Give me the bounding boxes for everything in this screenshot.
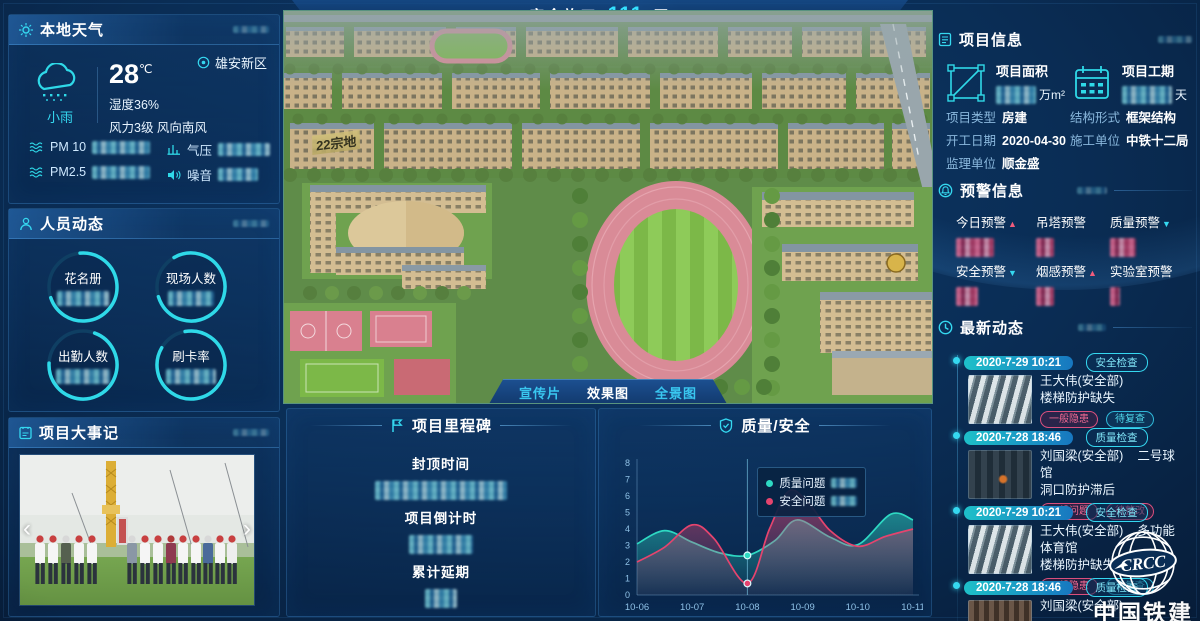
safety-series-dot bbox=[766, 498, 773, 505]
quality-series-label: 质量问题 bbox=[779, 475, 825, 491]
area-measure-icon bbox=[944, 61, 988, 105]
alert-smoke: 烟感预警▲ bbox=[1036, 261, 1097, 306]
timeline-dot bbox=[953, 507, 960, 514]
location-badge: 雄安新区 bbox=[197, 53, 267, 72]
stat-area: 项目面积 万m² bbox=[944, 61, 1065, 105]
ring-onsite: 现场人数 bbox=[153, 249, 229, 325]
ring-swipe-rate: 刷卡率 bbox=[153, 327, 229, 403]
entry-person: 刘国梁(安全部) bbox=[1040, 449, 1123, 463]
crcc-name: 中国铁建 bbox=[1086, 594, 1200, 621]
area-unit: 万m² bbox=[1039, 88, 1065, 102]
pressure-icon bbox=[167, 144, 181, 155]
redacted-value bbox=[1122, 86, 1172, 104]
metric-pressure: 气压 bbox=[167, 140, 270, 159]
entry-type-badge: 质量检查 bbox=[1086, 428, 1148, 447]
aerial-render bbox=[284, 11, 932, 403]
temp-unit: ℃ bbox=[139, 62, 152, 76]
field-project-type: 项目类型房建 bbox=[946, 107, 1027, 126]
wind: 风力3级 风向南风 bbox=[109, 117, 207, 136]
view-switch-bar: 宣传片 效果图 全景图 bbox=[489, 379, 727, 404]
alerts-panel-title: 预警信息 bbox=[960, 180, 1024, 201]
svg-text:1: 1 bbox=[625, 574, 630, 584]
trend-up-icon: ▲ bbox=[1088, 268, 1097, 278]
field-supervisor: 监理单位顺金盛 bbox=[946, 153, 1040, 172]
svg-text:7: 7 bbox=[625, 475, 630, 485]
alert-safety: 安全预警▼ bbox=[956, 261, 1017, 306]
project-info-panel: 项目信息 项目面积 万m² 项目工期 天 项目类型房建 结构形式框架结构 开工日… bbox=[938, 25, 1192, 173]
feed-entry[interactable]: 2020-7-28 18:46 质量检查 刘国梁(安全部)二号球馆 洞口防护滞后… bbox=[964, 428, 1186, 502]
redacted-value bbox=[831, 496, 857, 506]
svg-text:10-10: 10-10 bbox=[846, 602, 870, 613]
entry-date: 2020-7-29 10:21 bbox=[964, 356, 1073, 370]
redacted-value bbox=[1036, 238, 1054, 257]
aerial-render-viewer[interactable]: 22宗地 宣传片 效果图 全景图 bbox=[283, 10, 933, 404]
render-view-button[interactable]: 效果图 bbox=[587, 383, 629, 402]
weather-panel: 本地天气 雄安新区 小雨 28℃ 湿度36% 风力3级 风向南风 bbox=[8, 14, 280, 204]
temperature: 28℃ bbox=[109, 59, 207, 90]
redacted-value bbox=[166, 369, 216, 384]
redacted-value bbox=[92, 141, 150, 154]
feed-panel-title: 最新动态 bbox=[960, 317, 1024, 338]
redacted-value bbox=[831, 478, 857, 488]
feed-entry[interactable]: 2020-7-29 10:21 安全检查 王大伟(安全部) 楼梯防护缺失 一般隐… bbox=[964, 353, 1186, 427]
personnel-panel-title: 人员动态 bbox=[40, 213, 104, 234]
sun-gear-icon bbox=[19, 23, 33, 37]
trend-down-icon: ▼ bbox=[1008, 268, 1017, 278]
dashboard: 安全施工 111 天 本地天气 雄安新区 小雨 bbox=[0, 0, 1200, 621]
feed-photo bbox=[968, 450, 1032, 499]
noise-label: 噪音 bbox=[187, 165, 212, 184]
trend-down-icon: ▼ bbox=[1162, 219, 1171, 229]
redacted-decoration bbox=[1078, 324, 1106, 331]
air-wave-icon bbox=[29, 167, 44, 178]
milestone-panel: 项目里程碑 封顶时间 项目倒计时 累计延期 bbox=[286, 408, 596, 617]
stat-duration: 项目工期 天 bbox=[1070, 61, 1187, 105]
entry-issue: 楼梯防护缺失 bbox=[1040, 390, 1154, 407]
alert-lab: 实验室预警 bbox=[1110, 261, 1175, 306]
duration-unit: 天 bbox=[1175, 88, 1187, 102]
info-panel-title: 项目信息 bbox=[959, 29, 1023, 50]
person-icon bbox=[19, 217, 33, 231]
pm10-label: PM 10 bbox=[50, 140, 86, 154]
quality-safety-panel: 质量/安全 01234567810-0610-0710-0810-0910-10… bbox=[598, 408, 932, 617]
events-panel: 项目大事记 ‹ bbox=[8, 417, 280, 617]
redacted-decoration bbox=[233, 429, 269, 436]
redacted-decoration bbox=[1077, 187, 1107, 194]
condition-label: 小雨 bbox=[31, 107, 89, 126]
field-start-date: 开工日期2020-04-30 bbox=[946, 130, 1066, 149]
alert-quality: 质量预警▼ bbox=[1110, 212, 1171, 257]
timeline-dot bbox=[953, 432, 960, 439]
promo-video-button[interactable]: 宣传片 bbox=[519, 383, 561, 402]
alerts-panel: 预警信息 今日预警▲ 吊塔预警 质量预警▼ 安全预警▼ 烟感预警▲ 实验室预警 bbox=[938, 176, 1192, 310]
personnel-panel: 人员动态 花名册 现场人数 出勤人数 刷卡率 bbox=[8, 208, 280, 412]
memo-icon bbox=[19, 426, 32, 440]
quality-panel-title: 质量/安全 bbox=[741, 415, 810, 436]
svg-text:0: 0 bbox=[625, 590, 630, 600]
svg-text:10-06: 10-06 bbox=[625, 602, 649, 613]
chart-tooltip: 质量问题 安全问题 bbox=[757, 467, 866, 517]
quality-safety-chart[interactable]: 01234567810-0610-0710-0810-0910-1010-11 … bbox=[607, 453, 923, 617]
location-label: 雄安新区 bbox=[215, 53, 267, 72]
redacted-value bbox=[57, 291, 109, 306]
field-contractor: 施工单位中铁十二局 bbox=[1070, 130, 1189, 149]
ring-roster: 花名册 bbox=[45, 249, 121, 325]
redacted-decoration bbox=[1158, 36, 1192, 43]
rain-cloud-icon bbox=[31, 63, 83, 105]
svg-text:4: 4 bbox=[625, 524, 630, 534]
milestone-topping: 封顶时间 bbox=[287, 453, 595, 500]
redacted-value bbox=[425, 589, 457, 608]
entry-type-badge: 安全检查 bbox=[1086, 353, 1148, 372]
redacted-value bbox=[1110, 238, 1136, 257]
feed-photo bbox=[968, 600, 1032, 621]
feed-photo bbox=[968, 375, 1032, 424]
safety-series-label: 安全问题 bbox=[779, 493, 825, 509]
weather-panel-title: 本地天气 bbox=[40, 19, 104, 40]
svg-text:2: 2 bbox=[625, 557, 630, 567]
timeline-dot bbox=[953, 582, 960, 589]
redacted-decoration bbox=[233, 220, 269, 227]
redacted-value bbox=[218, 168, 258, 181]
entry-type-badge: 安全检查 bbox=[1086, 503, 1148, 522]
alert-crane: 吊塔预警 bbox=[1036, 212, 1088, 257]
svg-text:8: 8 bbox=[625, 458, 630, 468]
redacted-value bbox=[956, 287, 978, 306]
events-panel-title: 项目大事记 bbox=[39, 422, 119, 443]
svg-text:6: 6 bbox=[625, 491, 630, 501]
flag-icon bbox=[390, 418, 404, 433]
trend-up-icon: ▲ bbox=[1008, 219, 1017, 229]
document-icon bbox=[938, 32, 952, 47]
redacted-value bbox=[956, 238, 994, 257]
carousel-next-button[interactable]: › bbox=[243, 517, 251, 541]
alert-today: 今日预警▲ bbox=[956, 212, 1017, 257]
svg-text:5: 5 bbox=[625, 508, 630, 518]
redacted-value bbox=[168, 291, 214, 306]
entry-person: 王大伟(安全部) bbox=[1040, 374, 1123, 388]
redacted-value bbox=[409, 535, 473, 554]
status-tag: 待复查 bbox=[1106, 411, 1154, 428]
calendar-icon bbox=[1070, 61, 1114, 105]
svg-text:10-11: 10-11 bbox=[901, 602, 923, 613]
timeline-dot bbox=[953, 357, 960, 364]
svg-text:10-08: 10-08 bbox=[735, 602, 759, 613]
metric-pm10: PM 10 bbox=[29, 140, 150, 154]
ring-attendance: 出勤人数 bbox=[45, 327, 121, 403]
speaker-icon bbox=[167, 169, 181, 181]
redacted-value bbox=[1036, 287, 1054, 306]
metric-noise: 噪音 bbox=[167, 165, 258, 184]
pressure-label: 气压 bbox=[187, 140, 212, 159]
redacted-value bbox=[996, 86, 1036, 104]
milestone-panel-title: 项目里程碑 bbox=[412, 415, 492, 436]
milestone-countdown: 项目倒计时 bbox=[287, 507, 595, 554]
clock-icon bbox=[938, 320, 953, 335]
carousel-prev-button[interactable]: ‹ bbox=[23, 517, 31, 541]
redacted-value bbox=[56, 369, 110, 384]
alarm-bell-icon bbox=[938, 183, 953, 198]
severity-tag: 一般隐患 bbox=[1040, 411, 1098, 428]
redacted-value bbox=[92, 166, 150, 179]
crcc-logo: CRCC 中国铁建 bbox=[1086, 528, 1200, 621]
entry-date: 2020-7-29 10:21 bbox=[964, 506, 1073, 520]
field-structure: 结构形式框架结构 bbox=[1070, 107, 1176, 126]
weather-condition: 小雨 bbox=[31, 63, 89, 126]
svg-text:10-07: 10-07 bbox=[680, 602, 704, 613]
humidity: 湿度36% bbox=[109, 94, 207, 113]
event-photo: ‹ › bbox=[19, 454, 255, 606]
metric-pm25: PM2.5 bbox=[29, 165, 150, 179]
crcc-globe-icon: CRCC bbox=[1104, 528, 1182, 600]
shield-check-icon bbox=[719, 418, 733, 433]
redacted-value bbox=[1110, 287, 1120, 306]
redacted-value bbox=[375, 481, 507, 500]
redacted-value bbox=[218, 143, 270, 156]
air-wave-icon bbox=[29, 142, 44, 153]
quality-series-dot bbox=[766, 480, 773, 487]
svg-text:3: 3 bbox=[625, 541, 630, 551]
entry-date: 2020-7-28 18:46 bbox=[964, 431, 1073, 445]
milestone-delay: 累计延期 bbox=[287, 561, 595, 608]
pm25-label: PM2.5 bbox=[50, 165, 86, 179]
redacted-decoration bbox=[233, 26, 269, 33]
feed-photo bbox=[968, 525, 1032, 574]
entry-issue: 洞口防护滞后 bbox=[1040, 482, 1186, 499]
svg-text:10-09: 10-09 bbox=[790, 602, 814, 613]
panorama-button[interactable]: 全景图 bbox=[655, 383, 697, 402]
entry-date: 2020-7-28 18:46 bbox=[964, 581, 1073, 595]
